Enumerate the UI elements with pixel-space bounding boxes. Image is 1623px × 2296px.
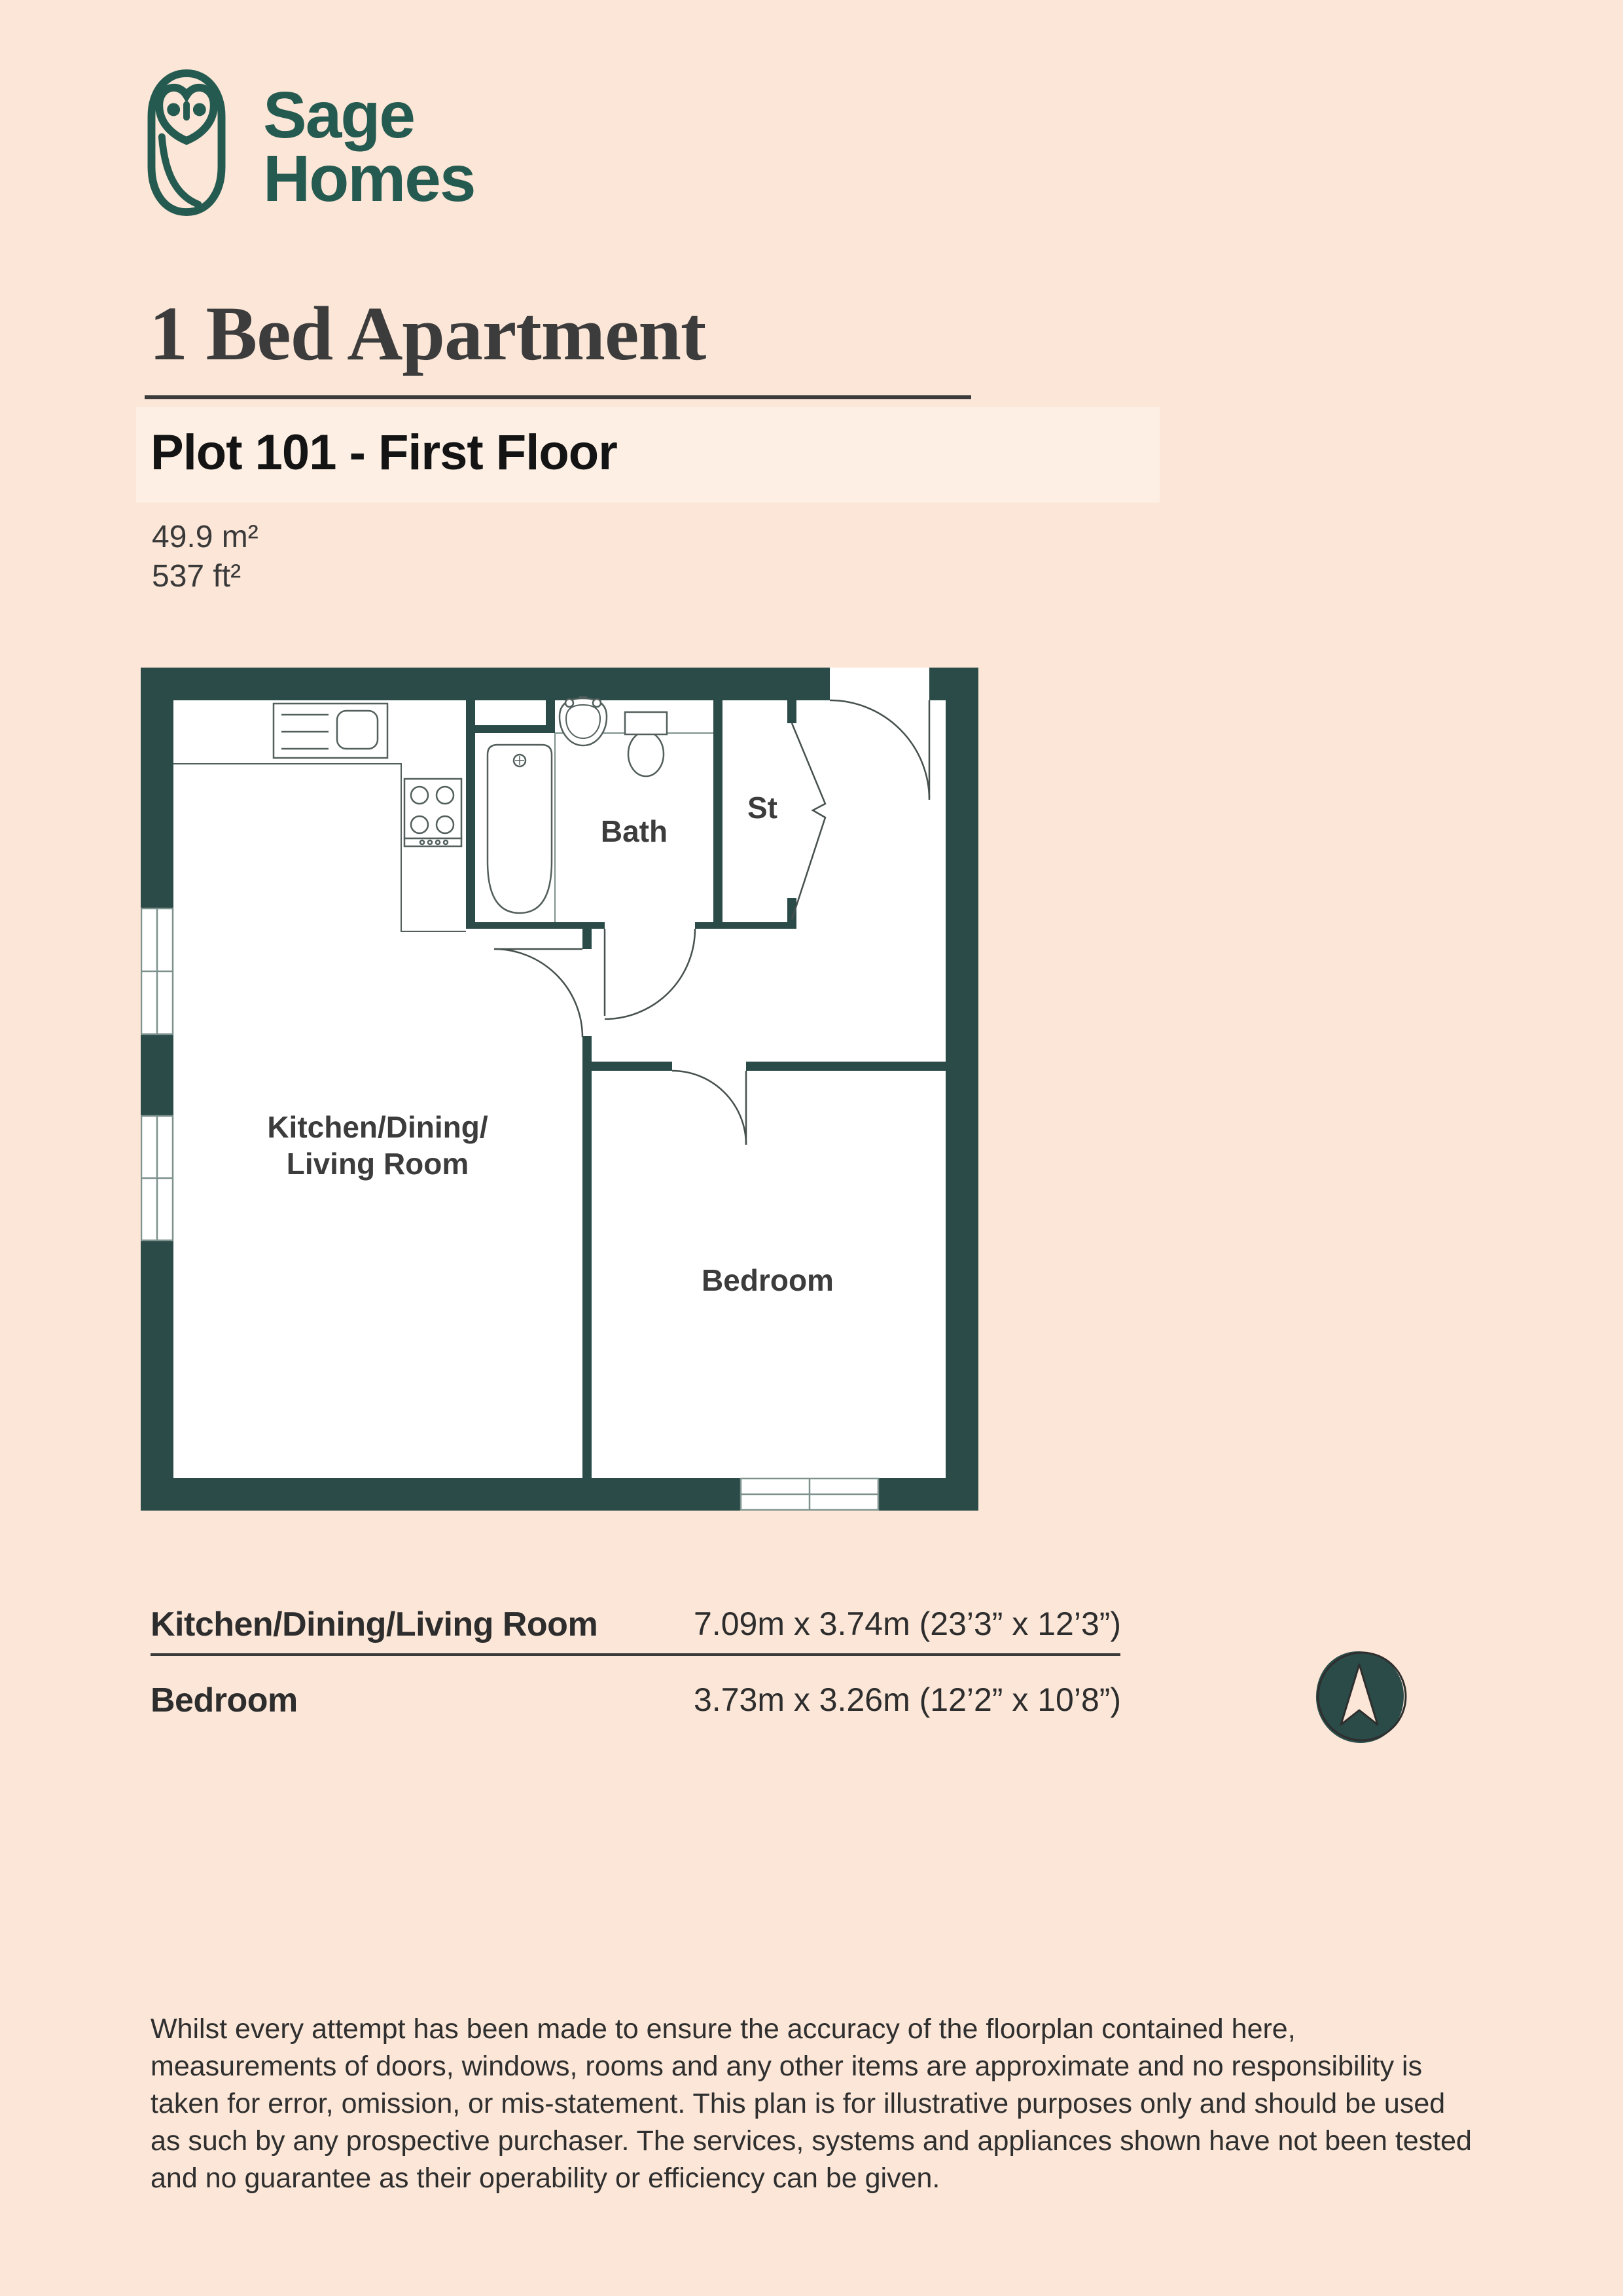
disclaimer-text: Whilst every attempt has been made to en… (151, 2011, 1499, 2197)
sage-homes-logo (139, 69, 234, 216)
hob-icon (404, 779, 461, 846)
disclaimer-line: Whilst every attempt has been made to en… (151, 2011, 1499, 2048)
disclaimer-line: taken for error, omission, or mis-statem… (151, 2085, 1499, 2123)
plot-label: Plot 101 - First Floor (151, 424, 617, 481)
north-arrow-icon (1308, 1645, 1411, 1749)
room-label-bedroom: Bedroom (702, 1263, 834, 1297)
kitchen-sink-icon (274, 704, 387, 758)
title-divider (145, 395, 971, 399)
floorplan-svg: Kitchen/Dining/ Living Room Bath St Bedr… (141, 668, 978, 1511)
table-divider (151, 1653, 1120, 1656)
disclaimer-line: as such by any prospective purchaser. Th… (151, 2123, 1499, 2160)
brand-line1: Sage (263, 84, 474, 147)
floor-area (173, 700, 946, 1478)
area-square-metres: 49.9 m² (152, 519, 259, 555)
disclaimer-line: and no guarantee as their operability or… (151, 2160, 1499, 2197)
area-square-feet: 537 ft² (152, 558, 241, 594)
window-left-2 (141, 1116, 173, 1240)
page-title: 1 Bed Apartment (149, 289, 705, 378)
dim-row-bedroom-size: 3.73m x 3.26m (12’2” x 10’8”) (694, 1681, 1121, 1719)
basin-icon (560, 697, 607, 745)
room-label-storage: St (747, 791, 777, 825)
disclaimer-line: measurements of doors, windows, rooms an… (151, 2048, 1499, 2085)
window-bedroom (741, 1479, 878, 1510)
bathtub-icon (488, 745, 552, 913)
window-left-1 (141, 908, 173, 1034)
entrance-opening (830, 668, 929, 700)
floorplan-page: Sage Homes 1 Bed Apartment Plot 101 - Fi… (0, 0, 1623, 2296)
brand-wordmark: Sage Homes (263, 84, 474, 211)
room-label-kitchen-line1: Kitchen/Dining/ (267, 1110, 488, 1144)
toilet-icon (625, 712, 667, 776)
brand-line2: Homes (263, 147, 474, 211)
dim-row-kitchen-size: 7.09m x 3.74m (23’3” x 12’3”) (694, 1605, 1121, 1643)
owl-logo-icon (139, 69, 234, 216)
room-label-bath: Bath (601, 814, 668, 848)
dim-row-bedroom-name: Bedroom (151, 1681, 298, 1720)
room-label-kitchen-line2: Living Room (287, 1147, 469, 1181)
dim-row-kitchen-name: Kitchen/Dining/Living Room (151, 1605, 597, 1644)
floorplan-drawing: Kitchen/Dining/ Living Room Bath St Bedr… (141, 668, 978, 1511)
